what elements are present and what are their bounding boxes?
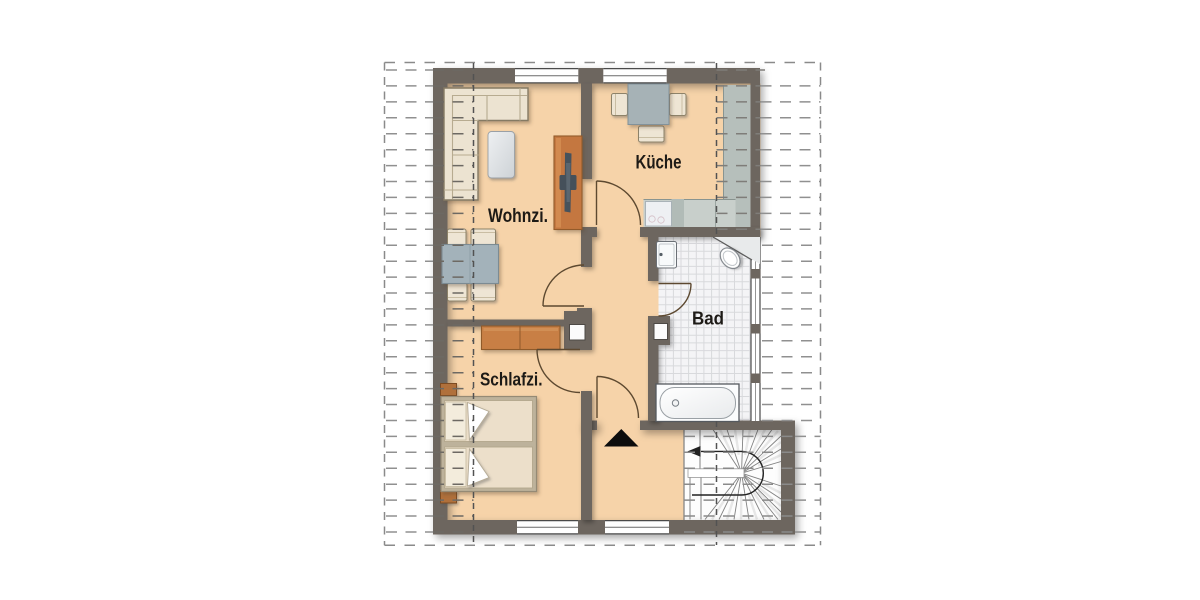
svg-text:Wohnzi.: Wohnzi. bbox=[488, 205, 548, 227]
svg-text:Bad: Bad bbox=[692, 309, 724, 329]
svg-text:Schlafzi.: Schlafzi. bbox=[480, 370, 543, 390]
svg-text:Küche: Küche bbox=[636, 153, 682, 174]
